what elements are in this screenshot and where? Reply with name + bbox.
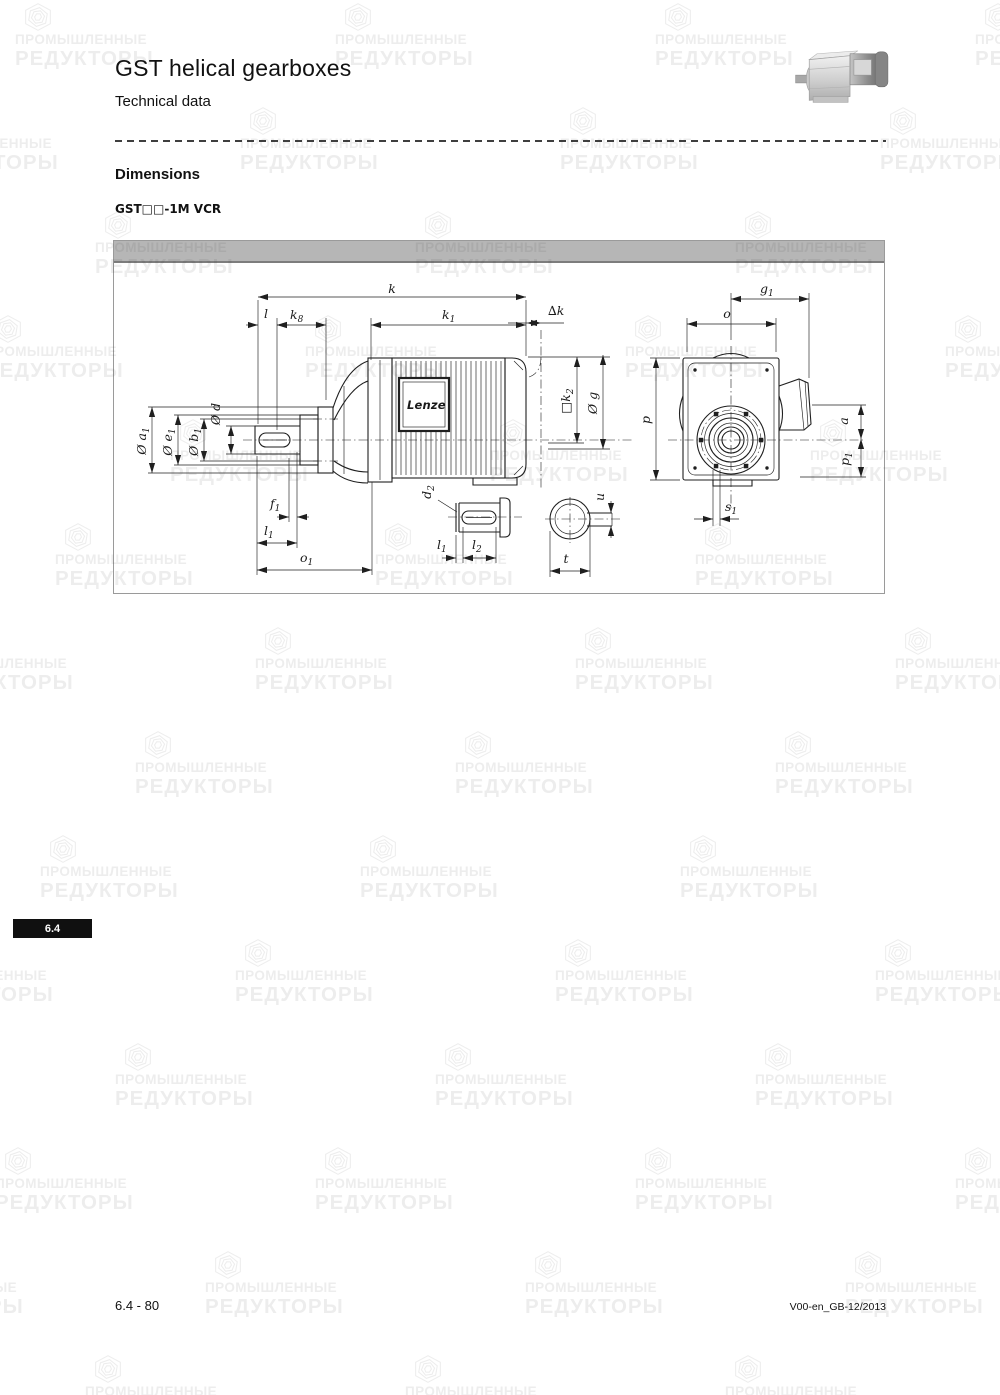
watermark-line1: ПРОМЫШЛЕННЫЕ: [680, 865, 830, 879]
watermark-line1: ПРОМЫШЛЕННЫЕ: [0, 1281, 35, 1295]
shaft-detail: [438, 498, 510, 537]
watermark-line1: ПРОМЫШЛЕННЫЕ: [875, 969, 1000, 983]
watermark: ПРОМЫШЛЕННЫЕ РЕДУКТОРЫ: [360, 834, 510, 901]
dimension-drawing: Lenze: [113, 240, 885, 594]
watermark-logo-icon: [758, 1042, 798, 1072]
dim-label-g1: g1: [760, 281, 774, 299]
watermark-line2: РЕДУКТОРЫ: [895, 673, 1000, 694]
watermark: ПРОМЫШЛЕННЫЕ РЕДУКТОРЫ: [680, 834, 830, 901]
watermark: ПРОМЫШЛЕННЫЕ РЕДУКТОРЫ: [115, 1042, 265, 1109]
watermark-line1: ПРОМЫШЛЕННЫЕ: [360, 865, 510, 879]
technical-drawing: Lenze: [113, 240, 886, 595]
dim-label-g: Ø g: [585, 392, 600, 415]
watermark-logo-icon: [208, 1250, 248, 1280]
watermark-logo-icon: [848, 1250, 888, 1280]
watermark-line2: РЕДУКТОРЫ: [40, 881, 190, 902]
dim-label-s1: s1: [725, 499, 737, 517]
catalog-page: GST helical gearboxes Technical data Dim…: [0, 0, 1000, 1395]
watermark: ПРОМЫШЛЕННЫЕ РЕДУКТОРЫ: [895, 626, 1000, 693]
watermark-line1: ПРОМЫШЛЕННЫЕ: [0, 657, 85, 671]
watermark-line1: ПРОМЫШЛЕННЫЕ: [880, 137, 1000, 151]
watermark-line2: РЕДУКТОРЫ: [360, 881, 510, 902]
watermark: ПРОМЫШЛЕННЫЕ РЕДУКТОРЫ: [775, 730, 925, 797]
watermark-line1: ПРОМЫШЛЕННЫЕ: [945, 345, 1000, 359]
watermark-logo-icon: [898, 626, 938, 656]
watermark: ПРОМЫШЛЕННЫЕ РЕДУКТОРЫ: [40, 834, 190, 901]
watermark-line1: ПРОМЫШЛЕННЫЕ: [335, 33, 485, 47]
dim-label-l: l: [264, 306, 268, 321]
watermark-line1: ПРОМЫШЛЕННЫЕ: [455, 761, 605, 775]
watermark-logo-icon: [683, 834, 723, 864]
watermark: ПРОМЫШЛЕННЫЕ РЕДУКТОРЫ: [435, 1042, 585, 1109]
watermark-line1: ПРОМЫШЛЕННЫЕ: [435, 1073, 585, 1087]
watermark-line1: ПРОМЫШЛЕННЫЕ: [575, 657, 725, 671]
watermark: ПРОМЫШЛЕННЫЕ РЕДУКТОРЫ: [955, 1146, 1000, 1213]
doc-version: V00-en_GB-12/2013: [790, 1301, 886, 1313]
watermark: ПРОМЫШЛЕННЫЕ РЕДУКТОРЫ: [0, 106, 70, 173]
watermark-logo-icon: [458, 730, 498, 760]
watermark-logo-icon: [638, 1146, 678, 1176]
watermark-logo-icon: [778, 730, 818, 760]
watermark-line1: ПРОМЫШЛЕННЫЕ: [775, 761, 925, 775]
watermark-logo-icon: [243, 106, 283, 136]
watermark-line2: РЕДУКТОРЫ: [435, 1089, 585, 1110]
dim-label-a: a: [836, 417, 851, 424]
watermark-logo-icon: [948, 314, 988, 344]
watermark-logo-icon: [408, 1354, 448, 1384]
dim-label-a1: Ø a1: [134, 427, 152, 455]
watermark: ПРОМЫШЛЕННЫЕ РЕДУКТОРЫ: [945, 314, 1000, 381]
watermark-line2: РЕДУКТОРЫ: [945, 361, 1000, 382]
dim-label-d: Ø d: [208, 403, 223, 426]
watermark: ПРОМЫШЛЕННЫЕ РЕДУКТОРЫ: [315, 1146, 465, 1213]
watermark-line1: ПРОМЫШЛЕННЫЕ: [40, 865, 190, 879]
watermark: ПРОМЫШЛЕННЫЕ РЕДУКТОРЫ: [455, 730, 605, 797]
watermark-logo-icon: [578, 626, 618, 656]
watermark-logo-icon: [118, 1042, 158, 1072]
watermark: ПРОМЫШЛЕННЫЕ РЕДУКТОРЫ: [975, 2, 1000, 69]
page-number: 6.4 - 80: [115, 1298, 159, 1313]
watermark: ПРОМЫШЛЕННЫЕ РЕДУКТОРЫ: [0, 1250, 35, 1317]
watermark-logo-icon: [88, 1354, 128, 1384]
watermark-line2: РЕДУКТОРЫ: [635, 1193, 785, 1214]
watermark-logo-icon: [558, 938, 598, 968]
watermark-line1: ПРОМЫШЛЕННЫЕ: [525, 1281, 675, 1295]
watermark: ПРОМЫШЛЕННЫЕ РЕДУКТОРЫ: [335, 2, 485, 69]
dim-label-e1: Ø e1: [160, 428, 178, 456]
dashed-divider: [115, 140, 886, 142]
dim-label-l1-detail: l1: [437, 537, 447, 555]
watermark-line1: ПРОМЫШЛЕННЫЕ: [115, 1073, 265, 1087]
watermark-logo-icon: [258, 626, 298, 656]
watermark: ПРОМЫШЛЕННЫЕ РЕДУКТОРЫ: [405, 1354, 555, 1395]
watermark-logo-icon: [338, 2, 378, 32]
watermark-logo-icon: [658, 2, 698, 32]
watermark-line2: РЕДУКТОРЫ: [205, 1297, 355, 1318]
watermark-line1: ПРОМЫШЛЕННЫЕ: [235, 969, 385, 983]
watermark-line1: ПРОМЫШЛЕННЫЕ: [85, 1385, 235, 1395]
watermark-logo-icon: [138, 730, 178, 760]
watermark-line2: РЕДУКТОРЫ: [880, 153, 1000, 174]
dim-label-o: o: [723, 306, 731, 321]
gearmotor-photo-art: [792, 46, 910, 114]
watermark-logo-icon: [878, 938, 918, 968]
dim-label-k: k: [388, 281, 396, 296]
front-view: [680, 354, 812, 487]
watermark-line1: ПРОМЫШЛЕННЫЕ: [725, 1385, 875, 1395]
watermark-logo-icon: [363, 834, 403, 864]
watermark-logo-icon: [43, 834, 83, 864]
terminal-box: [779, 379, 811, 430]
dim-label-b1: Ø b1: [186, 428, 204, 457]
watermark-line1: ПРОМЫШЛЕННЫЕ: [0, 137, 70, 151]
watermark-logo-icon: [318, 1146, 358, 1176]
section-tab: 6.4: [13, 919, 92, 938]
watermark-line1: ПРОМЫШЛЕННЫЕ: [635, 1177, 785, 1191]
centerlines: [243, 330, 866, 543]
dim-label-f1: f1: [269, 496, 280, 514]
watermark-line2: РЕДУКТОРЫ: [525, 1297, 675, 1318]
watermark-line2: РЕДУКТОРЫ: [0, 1193, 145, 1214]
watermark-line1: ПРОМЫШЛЕННЫЕ: [845, 1281, 995, 1295]
watermark-line2: РЕДУКТОРЫ: [775, 777, 925, 798]
section-heading: Dimensions: [115, 166, 200, 183]
brand-logo: Lenze: [407, 398, 446, 412]
gearmotor-photo: [792, 46, 910, 114]
watermark-line1: ПРОМЫШЛЕННЫЕ: [755, 1073, 905, 1087]
watermark-line1: ПРОМЫШЛЕННЫЕ: [655, 33, 805, 47]
watermark: ПРОМЫШЛЕННЫЕ РЕДУКТОРЫ: [0, 1146, 145, 1213]
dim-label-k1: k1: [442, 307, 455, 325]
watermark: ПРОМЫШЛЕННЫЕ РЕДУКТОРЫ: [555, 938, 705, 1005]
watermark: ПРОМЫШЛЕННЫЕ РЕДУКТОРЫ: [755, 1042, 905, 1109]
dim-label-p: p: [638, 416, 653, 424]
watermark-line1: ПРОМЫШЛЕННЫЕ: [405, 1385, 555, 1395]
watermark-line2: РЕДУКТОРЫ: [455, 777, 605, 798]
watermark-line2: РЕДУКТОРЫ: [680, 881, 830, 902]
watermark-logo-icon: [58, 522, 98, 552]
watermark: ПРОМЫШЛЕННЫЕ РЕДУКТОРЫ: [655, 2, 805, 69]
watermark: ПРОМЫШЛЕННЫЕ РЕДУКТОРЫ: [135, 730, 285, 797]
dim-label-l2: l2: [472, 537, 482, 555]
watermark-line2: РЕДУКТОРЫ: [335, 49, 485, 70]
watermark-line1: ПРОМЫШЛЕННЫЕ: [0, 969, 65, 983]
watermark-line2: РЕДУКТОРЫ: [875, 985, 1000, 1006]
watermark: ПРОМЫШЛЕННЫЕ РЕДУКТОРЫ: [205, 1250, 355, 1317]
watermark-line1: ПРОМЫШЛЕННЫЕ: [975, 33, 1000, 47]
watermark-line2: РЕДУКТОРЫ: [235, 985, 385, 1006]
watermark-line2: РЕДУКТОРЫ: [0, 985, 65, 1006]
watermark-line2: РЕДУКТОРЫ: [975, 49, 1000, 70]
watermark: ПРОМЫШЛЕННЫЕ РЕДУКТОРЫ: [575, 626, 725, 693]
watermark-line2: РЕДУКТОРЫ: [255, 673, 405, 694]
watermark-line1: ПРОМЫШЛЕННЫЕ: [315, 1177, 465, 1191]
dimension-lines: [152, 297, 861, 571]
watermark-logo-icon: [438, 1042, 478, 1072]
watermark-logo-icon: [18, 2, 58, 32]
watermark-line1: ПРОМЫШЛЕННЫЕ: [955, 1177, 1000, 1191]
watermark-line1: ПРОМЫШЛЕННЫЕ: [15, 33, 165, 47]
watermark-line2: РЕДУКТОРЫ: [240, 153, 390, 174]
watermark: ПРОМЫШЛЕННЫЕ РЕДУКТОРЫ: [525, 1250, 675, 1317]
watermark-line2: РЕДУКТОРЫ: [555, 985, 705, 1006]
watermark-line2: РЕДУКТОРЫ: [560, 153, 710, 174]
watermark-line2: РЕДУКТОРЫ: [135, 777, 285, 798]
dim-label-k2: □k2: [558, 388, 576, 413]
watermark-line2: РЕДУКТОРЫ: [115, 1089, 265, 1110]
watermark-line2: РЕДУКТОРЫ: [755, 1089, 905, 1110]
dim-label-t: t: [563, 551, 569, 566]
watermark-logo-icon: [958, 1146, 998, 1176]
watermark: ПРОМЫШЛЕННЫЕ РЕДУКТОРЫ: [725, 1354, 875, 1395]
dim-label-l1: l1: [264, 523, 274, 541]
watermark-line1: ПРОМЫШЛЕННЫЕ: [135, 761, 285, 775]
dim-label-k8: k8: [290, 307, 304, 325]
model-label: GST□□-1M VCR: [115, 202, 221, 216]
watermark: ПРОМЫШЛЕННЫЕ РЕДУКТОРЫ: [0, 626, 85, 693]
watermark: ПРОМЫШЛЕННЫЕ РЕДУКТОРЫ: [880, 106, 1000, 173]
dim-label-o1: o1: [300, 550, 313, 568]
page-title: GST helical gearboxes: [115, 55, 351, 82]
watermark: ПРОМЫШЛЕННЫЕ РЕДУКТОРЫ: [875, 938, 1000, 1005]
watermark-logo-icon: [738, 210, 778, 240]
watermark-line1: ПРОМЫШЛЕННЫЕ: [205, 1281, 355, 1295]
watermark-line1: ПРОМЫШЛЕННЫЕ: [255, 657, 405, 671]
watermark-logo-icon: [528, 1250, 568, 1280]
watermark: ПРОМЫШЛЕННЫЕ РЕДУКТОРЫ: [635, 1146, 785, 1213]
watermark-logo-icon: [728, 1354, 768, 1384]
watermark: ПРОМЫШЛЕННЫЕ РЕДУКТОРЫ: [255, 626, 405, 693]
watermark-line2: РЕДУКТОРЫ: [655, 49, 805, 70]
watermark-logo-icon: [0, 314, 28, 344]
watermark-line2: РЕДУКТОРЫ: [315, 1193, 465, 1214]
page-subtitle: Technical data: [115, 93, 211, 110]
watermark-line2: РЕДУКТОРЫ: [0, 153, 70, 174]
side-view: Lenze: [255, 358, 526, 485]
watermark-line1: ПРОМЫШЛЕННЫЕ: [895, 657, 1000, 671]
watermark-line2: РЕДУКТОРЫ: [955, 1193, 1000, 1214]
dim-label-u: u: [592, 493, 607, 501]
watermark-line2: РЕДУКТОРЫ: [575, 673, 725, 694]
watermark-logo-icon: [238, 938, 278, 968]
watermark: ПРОМЫШЛЕННЫЕ РЕДУКТОРЫ: [85, 1354, 235, 1395]
watermark-line2: РЕДУКТОРЫ: [0, 1297, 35, 1318]
section-tab-label: 6.4: [45, 923, 60, 935]
watermark-line1: ПРОМЫШЛЕННЫЕ: [555, 969, 705, 983]
dim-label-dk: ∆k: [548, 303, 564, 318]
watermark-logo-icon: [978, 2, 1000, 32]
dim-label-d2: d2: [419, 485, 437, 499]
dim-label-p1: p1: [837, 452, 855, 466]
watermark-logo-icon: [0, 1146, 38, 1176]
watermark: ПРОМЫШЛЕННЫЕ РЕДУКТОРЫ: [235, 938, 385, 1005]
watermark-logo-icon: [418, 210, 458, 240]
watermark-line2: РЕДУКТОРЫ: [0, 673, 85, 694]
watermark: ПРОМЫШЛЕННЫЕ РЕДУКТОРЫ: [0, 938, 65, 1005]
extension-lines: [148, 293, 866, 577]
watermark-line1: ПРОМЫШЛЕННЫЕ: [0, 1177, 145, 1191]
watermark-logo-icon: [563, 106, 603, 136]
